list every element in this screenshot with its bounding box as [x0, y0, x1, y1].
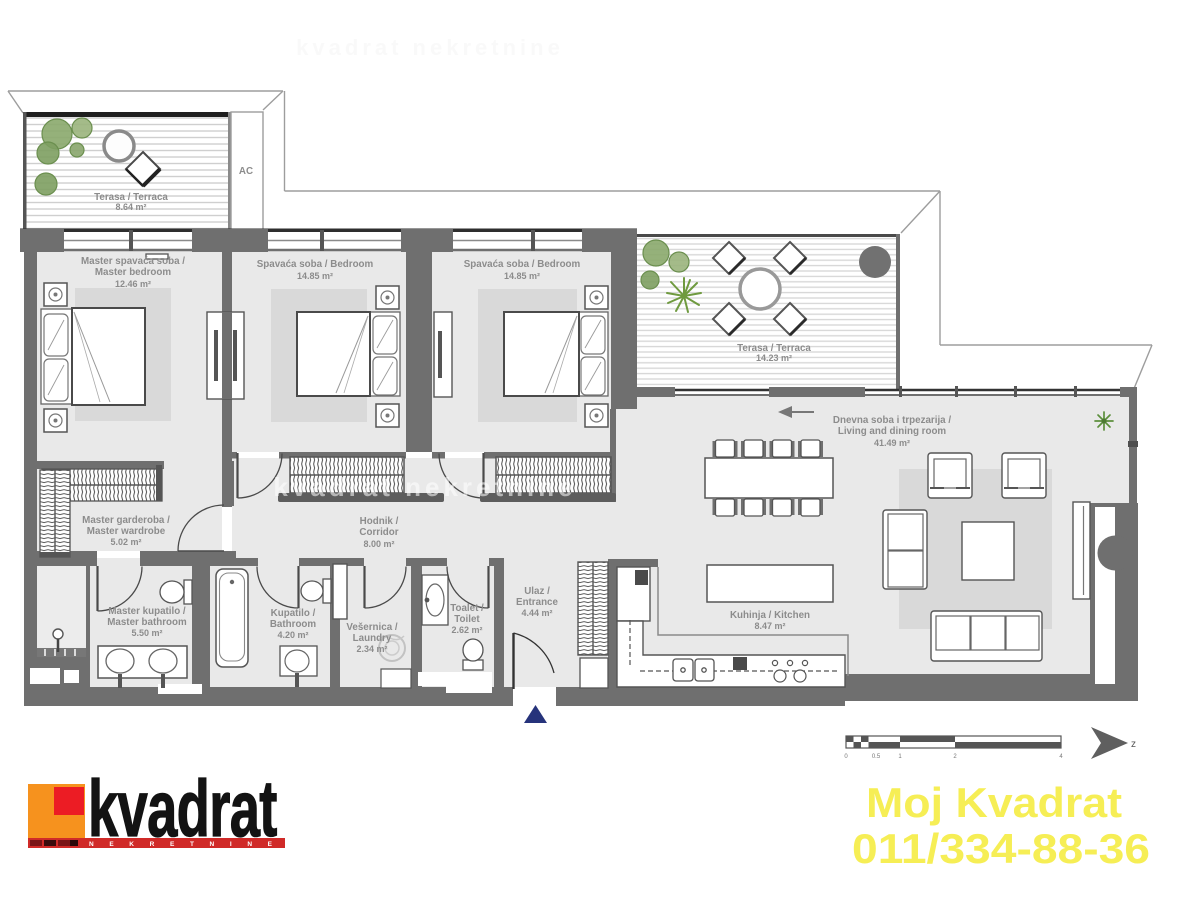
svg-text:Bathroom: Bathroom	[270, 619, 317, 630]
svg-text:Kuhinja / Kitchen: Kuhinja / Kitchen	[730, 610, 810, 621]
svg-text:5.50 m²: 5.50 m²	[131, 628, 162, 638]
svg-text:2.34 m²: 2.34 m²	[356, 644, 387, 654]
svg-text:Hodnik /: Hodnik /	[360, 516, 399, 527]
svg-text:Master bedroom: Master bedroom	[95, 267, 172, 278]
svg-text:Spavaća soba / Bedroom: Spavaća soba / Bedroom	[464, 259, 581, 270]
svg-text:Ulaz /: Ulaz /	[524, 586, 550, 597]
svg-text:Master wardrobe: Master wardrobe	[87, 526, 166, 537]
svg-text:kvadrat nekretnine: kvadrat nekretnine	[273, 472, 576, 502]
svg-text:4.44 m²: 4.44 m²	[521, 608, 552, 618]
svg-text:Laundry: Laundry	[353, 633, 392, 644]
svg-text:Moj Kvadrat: Moj Kvadrat	[866, 779, 1122, 826]
svg-text:14.85 m²: 14.85 m²	[504, 271, 540, 281]
svg-text:Toalet /: Toalet /	[450, 603, 484, 614]
svg-text:Master kupatilo /: Master kupatilo /	[108, 606, 186, 617]
svg-text:8.47 m²: 8.47 m²	[754, 621, 785, 631]
svg-text:8.00 m²: 8.00 m²	[363, 539, 394, 549]
svg-text:Master garderoba /: Master garderoba /	[82, 515, 170, 526]
svg-text:Living and dining room: Living and dining room	[838, 426, 947, 437]
svg-text:Master spavaća soba /: Master spavaća soba /	[81, 256, 185, 267]
svg-text:Kupatilo /: Kupatilo /	[271, 608, 316, 619]
svg-text:Corridor: Corridor	[359, 527, 398, 538]
svg-text:011/334-88-36: 011/334-88-36	[852, 825, 1150, 872]
svg-text:5.02 m²: 5.02 m²	[110, 537, 141, 547]
svg-text:41.49 m²: 41.49 m²	[874, 438, 910, 448]
svg-text:Vešernica /: Vešernica /	[346, 622, 397, 633]
svg-text:Toilet: Toilet	[454, 614, 480, 625]
svg-text:Dnevna soba i trpezarija /: Dnevna soba i trpezarija /	[833, 415, 951, 426]
svg-text:Spavaća soba / Bedroom: Spavaća soba / Bedroom	[257, 259, 374, 270]
svg-text:AC: AC	[239, 166, 253, 177]
svg-text:4.20 m²: 4.20 m²	[277, 630, 308, 640]
svg-text:14.23 m²: 14.23 m²	[756, 353, 792, 363]
svg-text:8.64 m²: 8.64 m²	[115, 202, 146, 212]
svg-text:2.62 m²: 2.62 m²	[451, 625, 482, 635]
svg-text:kvadrat nekretnine: kvadrat nekretnine	[296, 35, 564, 60]
svg-text:z: z	[1131, 739, 1136, 750]
svg-text:12.46 m²: 12.46 m²	[115, 279, 151, 289]
svg-text:Master bathroom: Master bathroom	[107, 617, 187, 628]
svg-text:Entrance: Entrance	[516, 597, 558, 608]
svg-text:0.5: 0.5	[872, 754, 881, 760]
svg-text:14.85 m²: 14.85 m²	[297, 271, 333, 281]
